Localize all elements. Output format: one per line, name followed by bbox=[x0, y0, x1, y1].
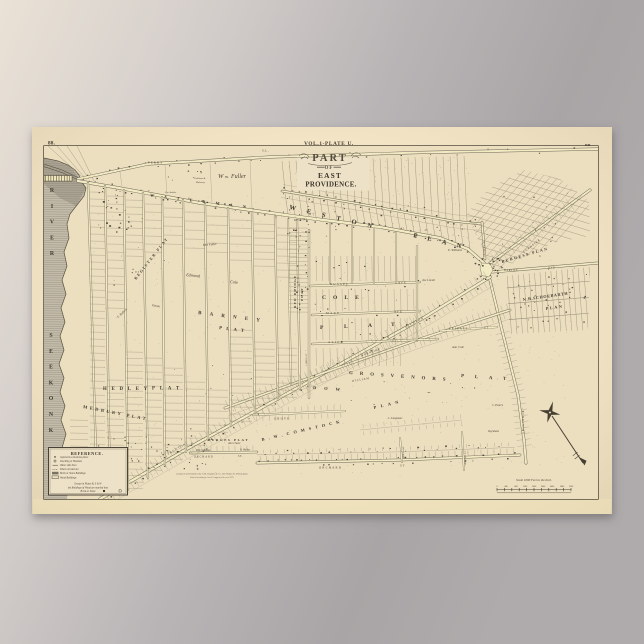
svg-text:AVE: AVE bbox=[394, 310, 403, 314]
svg-text:GROVE: GROVE bbox=[274, 417, 290, 421]
svg-text:HEDLEY: HEDLEY bbox=[103, 387, 152, 392]
svg-text:ST.: ST. bbox=[238, 455, 243, 458]
svg-text:ORCHARD: ORCHARD bbox=[194, 456, 214, 459]
svg-text:Wm Callahan: Wm Callahan bbox=[196, 449, 211, 452]
svg-text:A: A bbox=[368, 323, 372, 329]
svg-text:L: L bbox=[344, 324, 348, 330]
svg-text:GROSVENOR: GROSVENOR bbox=[484, 241, 486, 257]
svg-text:Cole: Cole bbox=[230, 279, 239, 285]
svg-text:S.L.: S.L. bbox=[262, 149, 269, 153]
svg-text:PLAT: PLAT bbox=[300, 287, 304, 301]
svg-text:BARTON: BARTON bbox=[504, 269, 518, 272]
svg-text:m.: m. bbox=[225, 174, 229, 179]
svg-text:JAMES ST: JAMES ST bbox=[305, 353, 308, 366]
svg-text:Mahoney: Mahoney bbox=[195, 181, 206, 184]
svg-text:Callahan &: Callahan & bbox=[194, 177, 205, 180]
svg-text:Ingraham: Ingraham bbox=[487, 430, 499, 433]
svg-text:Ann Cole: Ann Cole bbox=[451, 345, 465, 349]
svg-text:ARNOLD ST: ARNOLD ST bbox=[464, 450, 467, 466]
svg-text:PROVIDENCE.: PROVIDENCE. bbox=[305, 182, 356, 189]
svg-text:RED BRIDGE: RED BRIDGE bbox=[293, 275, 297, 308]
svg-text:K: K bbox=[49, 428, 54, 434]
svg-text:GROSVENOR: GROSVENOR bbox=[522, 410, 525, 434]
svg-text:Car Stables: Car Stables bbox=[165, 191, 176, 194]
svg-text:B. Walker: B. Walker bbox=[240, 449, 251, 452]
svg-text:ORCHARD: ORCHARD bbox=[319, 466, 342, 470]
svg-text:E: E bbox=[49, 349, 53, 355]
svg-text:PRIVATE: PRIVATE bbox=[449, 328, 469, 331]
svg-text:T: T bbox=[391, 322, 395, 328]
svg-text:Jas Lovett: Jas Lovett bbox=[422, 278, 435, 282]
svg-text:W: W bbox=[218, 173, 224, 180]
svg-text:Entered according to Act of Co: Entered according to Act of Congress in … bbox=[190, 476, 234, 479]
svg-text:Scale 1600 Feet to the Inch.: Scale 1600 Feet to the Inch. bbox=[516, 478, 552, 482]
svg-text:Compiled and Published by G.M.: Compiled and Published by G.M. Hopkins &… bbox=[176, 474, 249, 476]
svg-text:Brick or Stone Buildings: Brick or Stone Buildings bbox=[60, 472, 86, 475]
svg-text:Fuller: Fuller bbox=[230, 174, 247, 180]
svg-text:ST: ST bbox=[400, 464, 406, 468]
svg-text:ST: ST bbox=[392, 339, 398, 343]
svg-text:Dwelling or Business: Dwelling or Business bbox=[59, 460, 82, 463]
svg-text:C. Pearce: C. Pearce bbox=[492, 404, 504, 407]
svg-text:MARY: MARY bbox=[326, 311, 340, 315]
svg-text:RUSSEL: RUSSEL bbox=[330, 282, 350, 286]
svg-text:ST: ST bbox=[484, 327, 489, 330]
svg-text:E. Williams: E. Williams bbox=[447, 248, 463, 252]
svg-text:Except in Plates R, S & W: Except in Plates R, S & W bbox=[73, 483, 102, 486]
svg-text:Water side lines: Water side lines bbox=[60, 464, 76, 467]
svg-text:represents a business place: represents a business place bbox=[60, 456, 89, 459]
svg-text:AVE: AVE bbox=[548, 267, 556, 270]
svg-text:E: E bbox=[49, 365, 53, 371]
svg-text:Wood Buildings: Wood Buildings bbox=[60, 476, 76, 479]
svg-text:Plans not laid out: Plans not laid out bbox=[59, 468, 79, 471]
svg-text:EAST: EAST bbox=[318, 171, 342, 180]
svg-text:J. Longmans: J. Longmans bbox=[388, 417, 402, 420]
svg-text:O: O bbox=[49, 396, 54, 402]
svg-text:ALICE: ALICE bbox=[328, 340, 344, 344]
svg-text:PART: PART bbox=[312, 153, 347, 164]
svg-text:the Buildings of Wood are mark: the Buildings of Wood are marked thus bbox=[68, 486, 108, 489]
svg-text:S: S bbox=[49, 333, 52, 339]
svg-text:Ann Chace: Ann Chace bbox=[227, 442, 241, 445]
svg-text:E: E bbox=[50, 235, 54, 241]
svg-text:Brick or Stone: Brick or Stone bbox=[81, 490, 97, 493]
svg-text:COLE: COLE bbox=[322, 295, 366, 301]
svg-text:P: P bbox=[320, 325, 324, 331]
svg-text:PLAT: PLAT bbox=[152, 387, 184, 392]
svg-text:FERRY: FERRY bbox=[148, 161, 164, 165]
svg-text:JULIA ST: JULIA ST bbox=[402, 446, 405, 458]
svg-text:K: K bbox=[49, 380, 54, 386]
svg-text:AVE: AVE bbox=[398, 281, 407, 285]
